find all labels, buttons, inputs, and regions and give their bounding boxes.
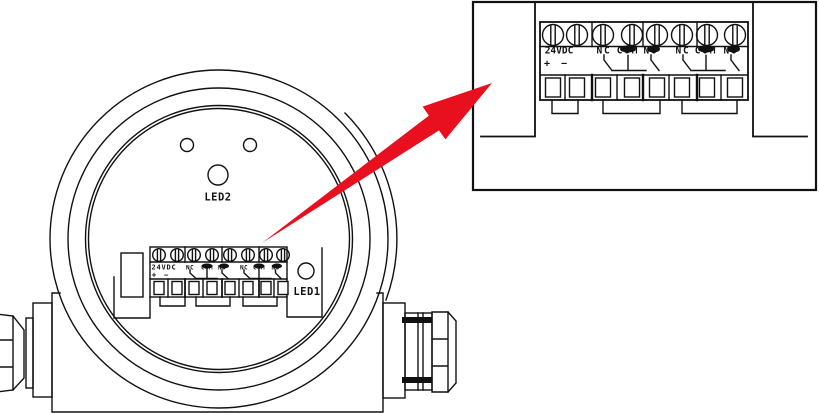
zoom-arrow <box>262 83 492 243</box>
screw-terminal <box>260 249 273 262</box>
device-base <box>52 293 383 412</box>
screw-terminal <box>171 249 184 262</box>
power-label: 24VDC <box>545 46 574 57</box>
label-highlight <box>202 264 213 269</box>
connector-tabs <box>160 297 277 306</box>
housing-ring-outer <box>50 70 388 408</box>
wiring-diagram: LED2 LED1 24VDC + − NC COM NO NC COM NO <box>0 0 819 413</box>
screw-terminal <box>672 25 693 46</box>
pcb-step-right <box>287 248 322 317</box>
plus-label: + <box>544 59 550 70</box>
mounting-hole-right <box>244 139 257 152</box>
label-highlight <box>272 264 282 269</box>
screw-terminal <box>188 249 201 262</box>
label-highlight <box>254 264 265 269</box>
housing-ring-2 <box>68 88 370 390</box>
screw-terminal <box>697 25 718 46</box>
cable-gland-left <box>0 303 52 397</box>
connector-tabs <box>552 100 737 114</box>
screw-terminal <box>593 25 614 46</box>
label-highlight <box>727 45 740 52</box>
cover-hinge-arc <box>345 113 397 300</box>
terminal-block-detail: 24VDC + − NC COM NO NC COM NO <box>540 22 748 114</box>
label-highlight <box>620 45 636 52</box>
screw-terminal <box>206 249 219 262</box>
screw-terminal <box>725 25 746 46</box>
led2-label: LED2 <box>204 192 231 204</box>
label-highlight <box>698 45 714 52</box>
screw-terminal <box>153 249 166 262</box>
led2-indicator <box>208 165 228 185</box>
housing-ring-3 <box>86 106 353 373</box>
housing-ring-inner <box>89 109 350 370</box>
detail-callout-box: 24VDC + − NC COM NO NC COM NO <box>473 2 816 190</box>
label-highlight <box>647 45 660 52</box>
screw-terminal <box>647 25 668 46</box>
plus-label: + <box>152 271 157 280</box>
minus-label: − <box>164 271 169 280</box>
relay1-contact-symbol <box>604 55 659 71</box>
screw-terminal <box>224 249 237 262</box>
led1-label: LED1 <box>293 286 320 298</box>
cable-gland-right <box>383 303 456 398</box>
terminal-block: 24VDC + − NC COM NO NC COM NO <box>150 247 289 306</box>
screw-terminal <box>242 249 255 262</box>
pcb-component <box>121 253 143 297</box>
minus-label: − <box>561 59 567 70</box>
label-highlight <box>219 264 229 269</box>
screw-terminal <box>622 25 643 46</box>
mounting-hole-left <box>181 139 194 152</box>
led1-indicator <box>298 263 314 279</box>
relay2-contact-symbol <box>683 55 739 71</box>
screw-terminal <box>567 25 588 46</box>
screw-terminal <box>543 25 564 46</box>
device-housing: LED2 LED1 <box>0 70 456 412</box>
